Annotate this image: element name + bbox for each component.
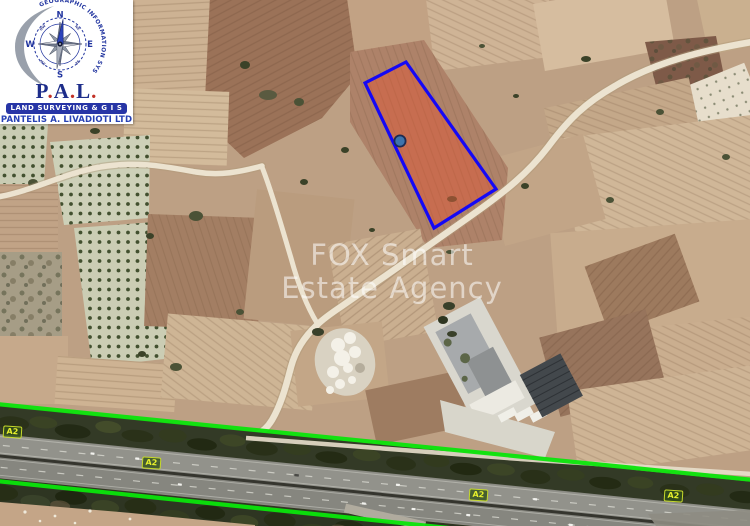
road-label-a2: A2 (469, 488, 489, 501)
watermark-line2: Estate Agency (257, 272, 527, 305)
company-name: P.A.L. (0, 80, 133, 102)
surveyor-logo: GEOGRAPHIC INFORMATION SYSTEMS (0, 0, 133, 124)
svg-text:E: E (87, 40, 93, 50)
road-label-a2: A2 (664, 489, 684, 502)
svg-text:SW: SW (39, 58, 46, 65)
svg-text:W: W (25, 40, 35, 50)
watermark-line1: FOX Smart (257, 239, 527, 272)
company-subtitle: PANTELIS A. LIVADIOTI LTD (0, 115, 133, 125)
svg-text:SE: SE (74, 59, 81, 66)
company-banner: LAND SURVEYING & G I S (6, 103, 127, 114)
watermark: FOX Smart Estate Agency (257, 239, 527, 305)
compass-rose-icon: GEOGRAPHIC INFORMATION SYSTEMS (0, 0, 133, 88)
satellite-map-image: A2 A2 A2 A2 FOX Smart Estate Agency GEOG… (0, 0, 750, 526)
svg-text:N: N (56, 11, 63, 21)
road-label-a2: A2 (142, 456, 162, 469)
road-label-a2: A2 (3, 425, 23, 438)
